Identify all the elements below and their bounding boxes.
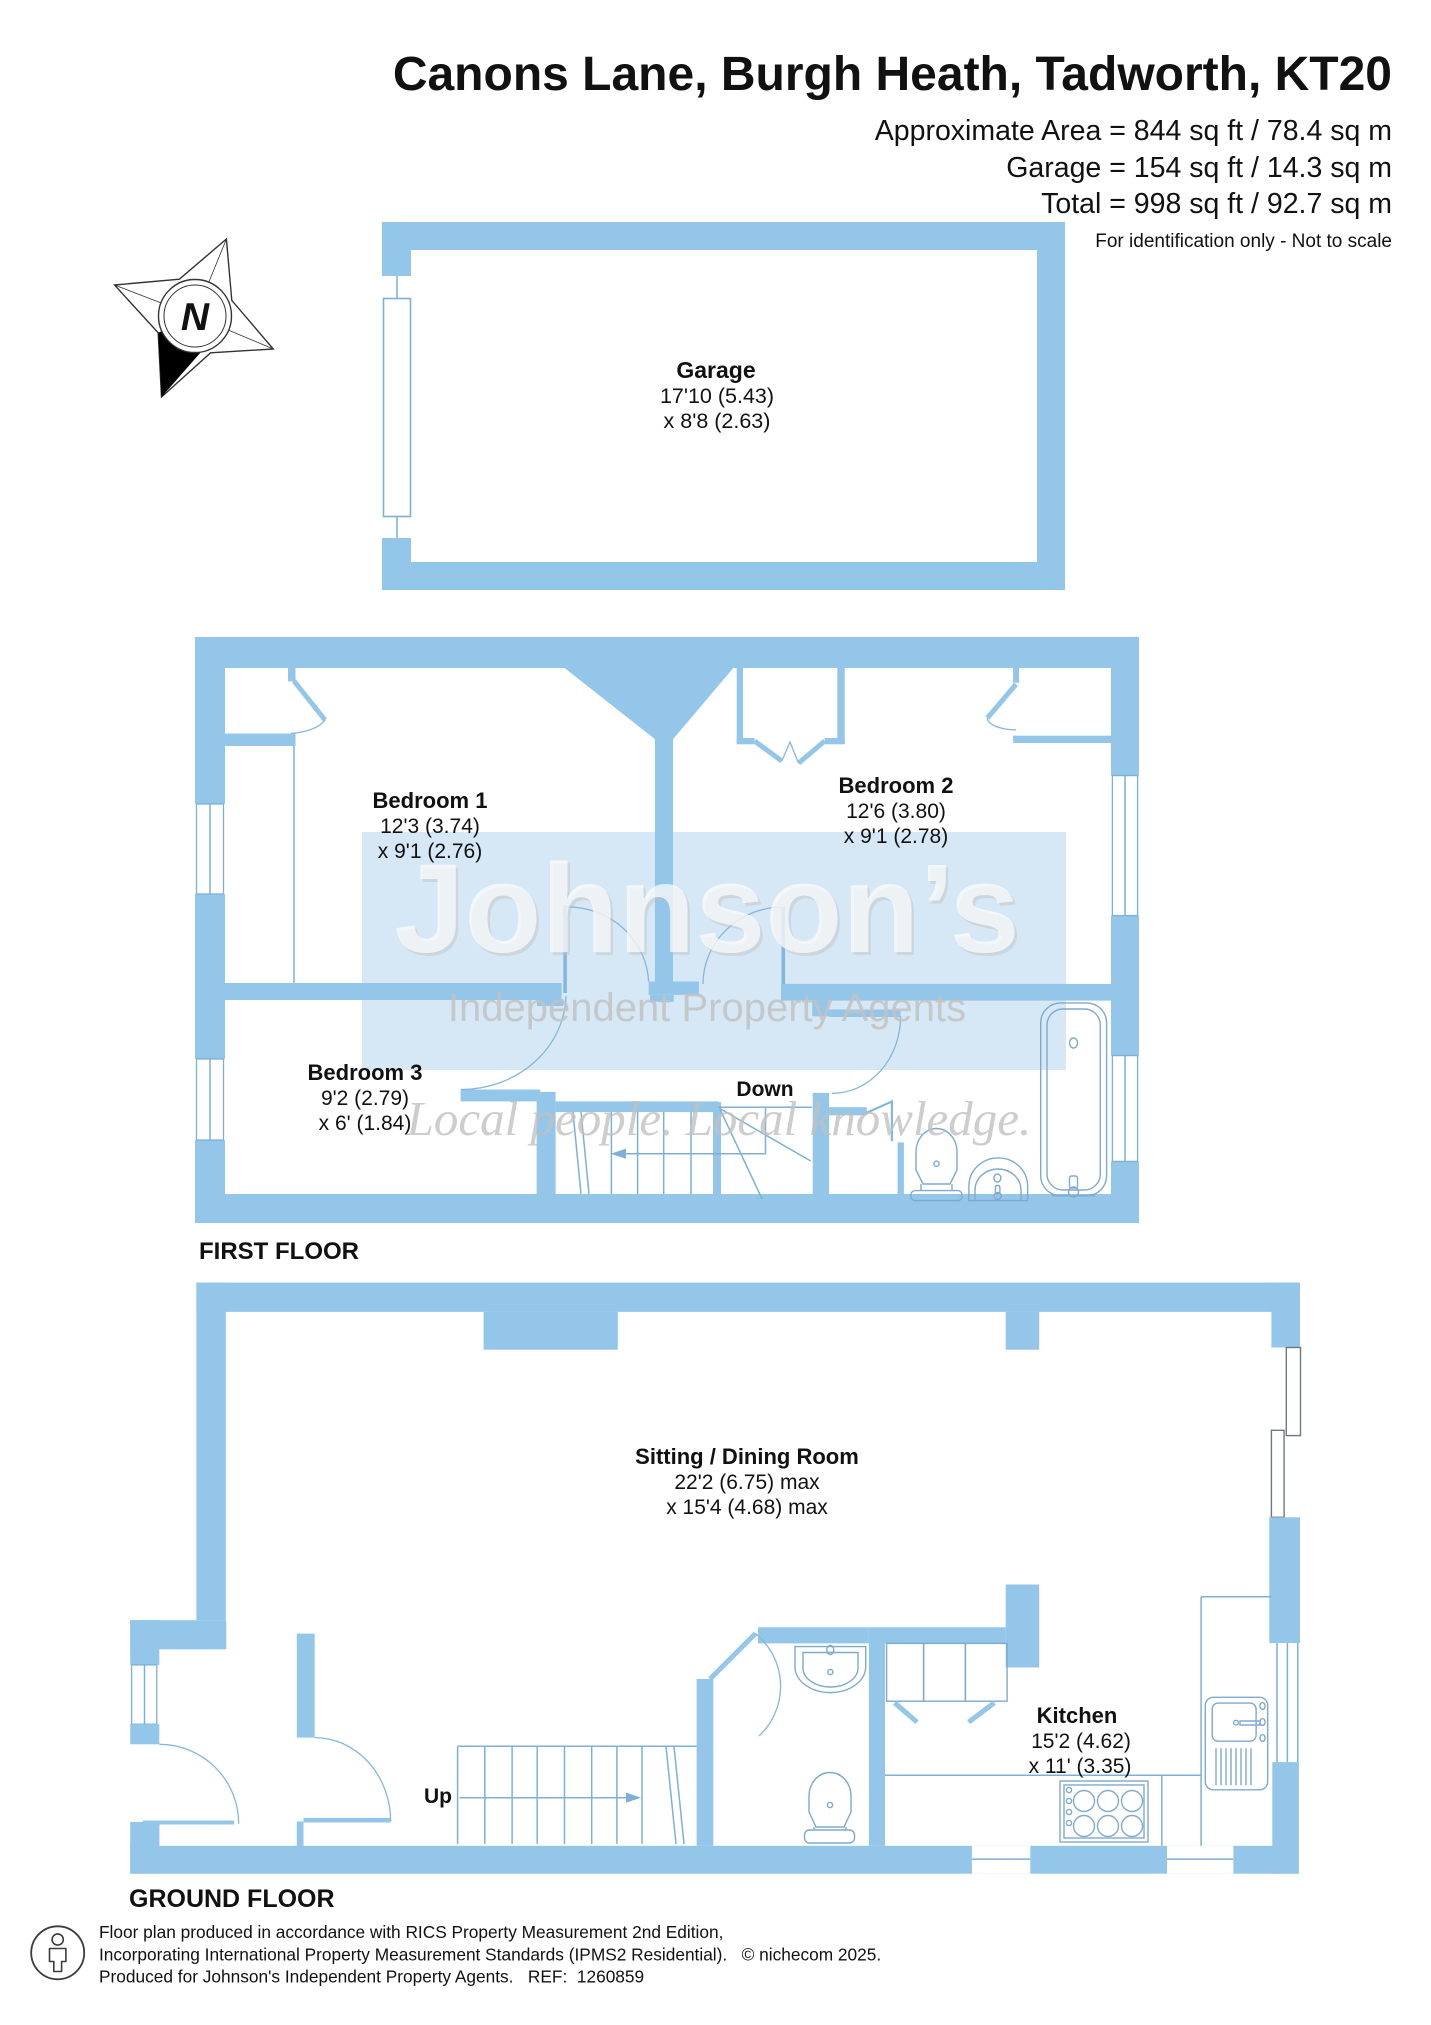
svg-text:22'2 (6.75) max: 22'2 (6.75) max bbox=[674, 1471, 820, 1494]
svg-text:Approximate Area = 844 sq ft /: Approximate Area = 844 sq ft / 78.4 sq m bbox=[875, 115, 1392, 147]
svg-text:Johnson’s: Johnson’s bbox=[394, 838, 1019, 979]
svg-text:Canons Lane, Burgh Heath, Tadw: Canons Lane, Burgh Heath, Tadworth, KT20 bbox=[393, 48, 1392, 101]
svg-text:x 6' (1.84): x 6' (1.84) bbox=[319, 1112, 412, 1135]
svg-text:x 9'1 (2.78): x 9'1 (2.78) bbox=[844, 825, 948, 848]
svg-text:GROUND FLOOR: GROUND FLOOR bbox=[129, 1885, 335, 1913]
svg-text:Down: Down bbox=[736, 1078, 793, 1101]
svg-text:Independent Property Agents: Independent Property Agents bbox=[448, 986, 966, 1030]
svg-text:x 11' (3.35): x 11' (3.35) bbox=[1029, 1755, 1132, 1778]
svg-text:x 8'8 (2.63): x 8'8 (2.63) bbox=[664, 409, 771, 433]
svg-text:x 15'4 (4.68) max: x 15'4 (4.68) max bbox=[666, 1496, 828, 1519]
svg-text:Bedroom 3: Bedroom 3 bbox=[308, 1060, 423, 1085]
svg-text:x 9'1 (2.76): x 9'1 (2.76) bbox=[378, 840, 482, 863]
svg-text:Kitchen: Kitchen bbox=[1037, 1703, 1118, 1728]
svg-text:17'10 (5.43): 17'10 (5.43) bbox=[660, 384, 774, 408]
svg-text:Up: Up bbox=[424, 1785, 452, 1808]
svg-text:15'2 (4.62): 15'2 (4.62) bbox=[1031, 1730, 1131, 1753]
svg-text:Incorporating International Pr: Incorporating International Property Mea… bbox=[99, 1945, 881, 1965]
svg-text:Sitting / Dining Room: Sitting / Dining Room bbox=[635, 1444, 859, 1469]
svg-text:12'3 (3.74): 12'3 (3.74) bbox=[380, 815, 480, 838]
svg-text:Produced for Johnson's Indepen: Produced for Johnson's Independent Prope… bbox=[99, 1967, 644, 1987]
svg-text:N: N bbox=[181, 296, 210, 339]
svg-text:9'2 (2.79): 9'2 (2.79) bbox=[321, 1087, 409, 1110]
svg-text:Total = 998 sq ft / 92.7 sq m: Total = 998 sq ft / 92.7 sq m bbox=[1041, 188, 1392, 220]
svg-text:Garage: Garage bbox=[676, 357, 755, 383]
svg-text:Garage = 154 sq ft / 14.3 sq m: Garage = 154 sq ft / 14.3 sq m bbox=[1006, 152, 1392, 184]
svg-text:For identification only - Not: For identification only - Not to scale bbox=[1095, 231, 1392, 252]
svg-text:Floor plan produced in accorda: Floor plan produced in accordance with R… bbox=[99, 1922, 723, 1942]
svg-text:Bedroom 2: Bedroom 2 bbox=[839, 773, 954, 798]
svg-text:Local people. Local knowledge.: Local people. Local knowledge. bbox=[406, 1091, 1032, 1146]
svg-text:FIRST FLOOR: FIRST FLOOR bbox=[199, 1238, 359, 1265]
svg-text:Bedroom 1: Bedroom 1 bbox=[373, 788, 488, 813]
svg-text:12'6 (3.80): 12'6 (3.80) bbox=[846, 800, 946, 823]
